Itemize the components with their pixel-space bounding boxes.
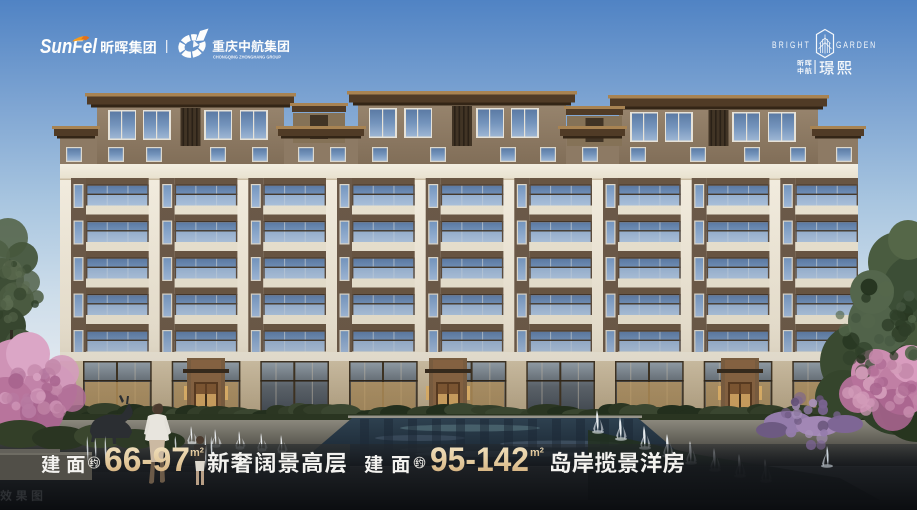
svg-text:CHONGQING ZHONGHANG GROUP: CHONGQING ZHONGHANG GROUP bbox=[213, 55, 282, 61]
svg-text:GARDEN: GARDEN bbox=[836, 40, 877, 51]
svg-text:66-97: 66-97 bbox=[104, 441, 190, 479]
svg-text:95-142: 95-142 bbox=[430, 441, 529, 479]
svg-text:BRIGHT: BRIGHT bbox=[772, 40, 811, 51]
svg-text:SunFel: SunFel bbox=[40, 35, 98, 58]
